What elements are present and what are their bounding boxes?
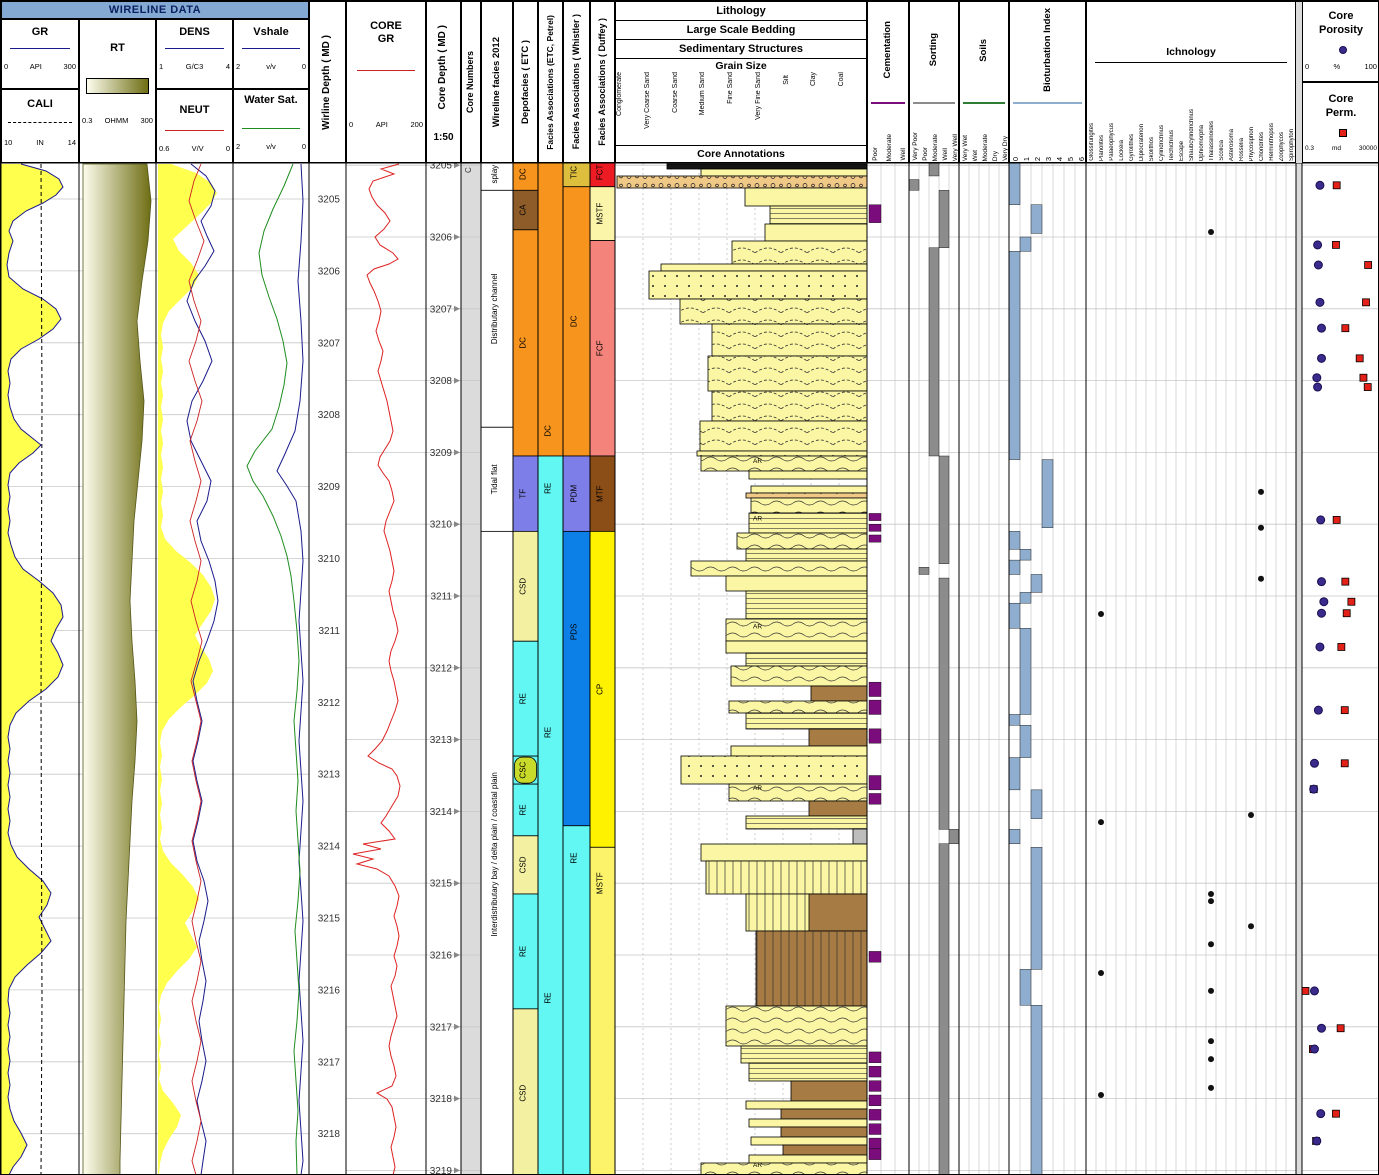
- sub-label: Well: [942, 148, 949, 161]
- bioturbation-title: Bioturbation Index: [1043, 8, 1053, 92]
- sub-label: Thalassinoides: [1209, 121, 1215, 161]
- svg-text:MSTF: MSTF: [596, 203, 605, 225]
- sub-label: Very Fine Sand: [755, 72, 762, 120]
- gr-label: GR: [2, 26, 78, 38]
- sub-label: Diplocraterion: [1139, 124, 1145, 161]
- dens-curve-key: [165, 48, 224, 49]
- core-perm-header: Core Perm. 0.3 md 30000: [1302, 82, 1379, 163]
- svg-text:FCF: FCF: [596, 340, 605, 356]
- fa-etc-track: DCRERERE: [538, 158, 563, 1175]
- svg-text:DC: DC: [519, 168, 528, 180]
- svg-text:DC: DC: [544, 425, 553, 437]
- svg-text:3215: 3215: [430, 879, 453, 890]
- cementation-header: Cementation PoorModerateWell: [867, 1, 909, 163]
- cali-min: 10: [4, 138, 12, 147]
- svg-text:3211: 3211: [318, 626, 340, 637]
- sort-labels-item: Well: [940, 105, 950, 161]
- svg-text:Tidal flat: Tidal flat: [490, 464, 499, 495]
- watersat-max: 0: [302, 142, 306, 151]
- svg-text:TF: TF: [519, 489, 528, 499]
- ichno-labels-item: Thalassinoides: [1207, 63, 1217, 161]
- ichno-labels-item: Asterosoma: [1227, 63, 1237, 161]
- sorting-key-line: [913, 102, 955, 104]
- dens-max: 4: [226, 62, 230, 71]
- ichno-labels-item: Planolites: [1097, 63, 1107, 161]
- ichno-labels-item: Rosselia: [1237, 63, 1247, 161]
- svg-text:AR: AR: [753, 516, 762, 523]
- depofacies-title: Depofacies ( ETC ): [521, 40, 531, 124]
- gr-unit: API: [30, 62, 42, 71]
- sub-label: Shaubcylindrichnus: [1189, 109, 1195, 161]
- core-numbers-title: Core Numbers: [466, 51, 475, 113]
- wireline-data-title: WIRELINE DATA: [109, 4, 201, 16]
- cali-max: 14: [68, 138, 76, 147]
- svg-text:AR: AR: [753, 1162, 762, 1169]
- perm-min: 0.3: [1305, 145, 1314, 152]
- lithology-header: Lithology Large Scale Bedding Sedimentar…: [615, 1, 867, 163]
- svg-text:splay: splay: [490, 165, 499, 184]
- svg-text:PDM: PDM: [570, 484, 579, 502]
- sorting-track: [909, 158, 959, 1175]
- watersat-curve-key: [242, 128, 300, 129]
- svg-text:CSD: CSD: [519, 578, 528, 595]
- grain-labels-item: Conglomerate: [616, 72, 644, 144]
- fa-whistler-track: TICDCPDMPDSRE: [563, 158, 590, 1175]
- svg-text:CSC: CSC: [519, 761, 528, 778]
- fa-etc-header: Facies Associations (ETC, Petrel): [538, 1, 563, 163]
- dens-header: DENS 1 G/C3 4: [156, 19, 233, 89]
- svg-text:3210: 3210: [430, 520, 453, 531]
- cali-label: CALI: [2, 98, 78, 110]
- ichnology-title: Ichnology: [1087, 46, 1295, 58]
- svg-text:3218: 3218: [430, 1094, 453, 1105]
- sub-label: Ophiomorpha: [1199, 125, 1205, 161]
- svg-text:CP: CP: [596, 684, 605, 695]
- rt-max: 300: [140, 116, 153, 125]
- ichno-labels-item: Escape: [1177, 63, 1187, 161]
- core-porosity-header: Core Porosity 0 % 100: [1302, 1, 1379, 82]
- neut-header: NEUT 0.6 V/V 0: [156, 89, 233, 163]
- soils-key-line: [963, 102, 1005, 104]
- ichno-labels-item: Cylindrichnus: [1157, 63, 1167, 161]
- soil-labels-item: Wet: [970, 105, 980, 161]
- svg-text:DC: DC: [519, 337, 528, 349]
- sub-label: Clay: [810, 72, 817, 86]
- svg-text:PDS: PDS: [570, 624, 579, 640]
- svg-text:3207: 3207: [430, 304, 453, 315]
- wireline-data-titlebar: WIRELINE DATA: [1, 1, 309, 19]
- grain-labels-item: Medium Sand: [699, 72, 727, 144]
- biot-labels-item: 1: [1021, 105, 1032, 161]
- grain-labels-item: Very Fine Sand: [755, 72, 783, 144]
- wireline-facies-header: Wireline facies 2012: [481, 1, 513, 163]
- sub-label: Coal: [838, 72, 845, 86]
- sorting-title: Sorting: [929, 33, 939, 66]
- fa-whistler-title: Facies Associations ( Whistler ): [572, 14, 581, 149]
- biot-labels-item: 3: [1043, 105, 1054, 161]
- svg-text:3211: 3211: [430, 592, 452, 603]
- sub-label: Moderate: [932, 134, 939, 161]
- rt-unit: OHMM: [105, 116, 129, 125]
- sub-label: Helminthopsis: [1269, 123, 1275, 161]
- sub-label: Moderate: [886, 134, 893, 161]
- log-plot-canvas: splayDistributary channelTidal flatInter…: [1, 1, 1379, 1175]
- sub-label: Scolicia: [1219, 140, 1225, 161]
- watersat-min: 2: [236, 142, 240, 151]
- cementation-key-line: [871, 102, 905, 104]
- core-gr-curve-key: [357, 70, 415, 71]
- gr-curve-key: [10, 48, 70, 49]
- svg-text:3205: 3205: [318, 195, 341, 206]
- core-depth-scale: 1:50: [427, 132, 460, 143]
- sub-label: Cylindrichnus: [1159, 125, 1165, 161]
- gr-max: 300: [63, 62, 76, 71]
- svg-text:3213: 3213: [430, 735, 453, 746]
- sub-label: Planolites: [1099, 135, 1105, 161]
- svg-text:CSD: CSD: [519, 856, 528, 873]
- rt-header: RT 0.3 OHMM 300: [79, 19, 156, 163]
- grain-labels-item: Very Coarse Sand: [644, 72, 672, 144]
- rt-min: 0.3: [82, 116, 92, 125]
- sub-label: Very Dry: [1002, 136, 1009, 161]
- sub-label: Spirophyton: [1289, 129, 1295, 161]
- watersat-label: Water Sat.: [234, 94, 308, 106]
- core-gr-unit: API: [376, 120, 388, 129]
- neut-min: 0.6: [159, 144, 169, 153]
- sub-label: Dry: [992, 151, 999, 161]
- bioturbation-header: Bioturbation Index 0123456: [1009, 1, 1086, 163]
- grain-size-title: Grain Size: [616, 59, 866, 73]
- svg-text:RE: RE: [544, 727, 553, 738]
- biot-labels-item: 0: [1010, 105, 1021, 161]
- sub-label: 5: [1066, 157, 1075, 161]
- soil-labels-item: Moderate: [980, 105, 990, 161]
- sub-label: 4: [1055, 157, 1064, 161]
- svg-text:3213: 3213: [318, 770, 341, 781]
- rt-label: RT: [80, 42, 155, 54]
- ichno-labels-item: Glossifungites: [1087, 63, 1097, 161]
- cem-labels-item: Well: [896, 105, 910, 161]
- svg-text:3216: 3216: [430, 951, 453, 962]
- svg-text:C: C: [464, 167, 473, 173]
- svg-text:3206: 3206: [430, 233, 453, 244]
- wireline-facies-title: Wireline facies 2012: [492, 37, 502, 127]
- svg-text:RE: RE: [544, 483, 553, 494]
- neut-max: 0: [226, 144, 230, 153]
- sub-label: 2: [1033, 157, 1042, 161]
- sub-label: Coarse Sand: [672, 72, 679, 113]
- svg-text:CSD: CSD: [519, 1085, 528, 1102]
- biot-labels-item: 4: [1054, 105, 1065, 161]
- sub-label: Glossifungites: [1089, 123, 1095, 161]
- svg-text:3219: 3219: [430, 1166, 453, 1175]
- svg-text:RE: RE: [519, 804, 528, 815]
- sub-label: Chondrites: [1259, 132, 1265, 161]
- dens-unit: G/C3: [186, 62, 204, 71]
- fa-whistler-header: Facies Associations ( Whistler ): [563, 1, 590, 163]
- cementation-title: Cementation: [883, 21, 893, 79]
- sub-label: Gyrolithes: [1129, 134, 1135, 161]
- svg-text:AR: AR: [753, 785, 762, 792]
- porosity-unit: %: [1333, 62, 1340, 71]
- grain-size-labels: ConglomerateVery Coarse SandCoarse SandM…: [616, 72, 866, 144]
- sub-label: Poor: [872, 147, 879, 161]
- grain-labels-item: Fine Sand: [727, 72, 755, 144]
- svg-text:AR: AR: [753, 458, 762, 465]
- biot-labels-item: 5: [1065, 105, 1076, 161]
- dens-min: 1: [159, 62, 163, 71]
- svg-text:3215: 3215: [318, 914, 341, 925]
- soil-labels-item: Dry: [990, 105, 1000, 161]
- svg-text:RE: RE: [570, 853, 579, 864]
- soils-header: Soils Very WetWetModerateDryVery Dry: [959, 1, 1009, 163]
- perm-marker-key: [1339, 129, 1347, 137]
- sub-label: Rosselia: [1239, 138, 1245, 161]
- svg-text:3214: 3214: [318, 842, 341, 853]
- core-gr-label: CORE GR: [347, 20, 425, 45]
- cementation-track: [869, 205, 881, 1160]
- core-numbers-header: Core Numbers: [461, 1, 481, 163]
- svg-text:DC: DC: [570, 315, 579, 327]
- sub-label: 1: [1022, 157, 1031, 161]
- sub-label: 3: [1044, 157, 1053, 161]
- svg-text:3208: 3208: [318, 410, 341, 421]
- sub-label: Very Wet: [962, 135, 969, 161]
- cali-header: CALI 10 IN 14: [1, 89, 79, 163]
- svg-text:MTF: MTF: [596, 485, 605, 502]
- cem-labels-item: Poor: [868, 105, 882, 161]
- neut-curve-key: [165, 130, 224, 131]
- neut-label: NEUT: [157, 104, 232, 116]
- sort-labels-item: Moderate: [930, 105, 940, 161]
- ichno-labels-item: Diplocraterion: [1137, 63, 1147, 161]
- ichno-labels-item: Skolithos: [1147, 63, 1157, 161]
- sub-label: 6: [1077, 157, 1086, 161]
- sorting-header: Sorting Very PoorPoorModerateWellVery We…: [909, 1, 959, 163]
- svg-text:CA: CA: [519, 204, 528, 216]
- vshale-curve-key: [242, 48, 300, 49]
- gr-header: GR 0 API 300: [1, 19, 79, 89]
- sort-labels-item: Poor: [920, 105, 930, 161]
- ichno-labels-item: Palaeophycus: [1107, 63, 1117, 161]
- ichno-labels-item: Zoophycos: [1277, 63, 1287, 161]
- rt-gradient-key: [86, 78, 149, 94]
- soil-labels-item: Very Wet: [960, 105, 970, 161]
- vshale-unit: v/v: [266, 62, 276, 71]
- soils-sublabels: Very WetWetModerateDryVery Dry: [960, 105, 1010, 161]
- sub-label: Phycosiphon: [1249, 127, 1255, 161]
- cali-curve-key: [8, 122, 72, 123]
- svg-text:Distributary channel: Distributary channel: [490, 273, 499, 344]
- porosity-min: 0: [1305, 62, 1309, 71]
- fa-duffey-title: Facies Associations ( Duffey ): [598, 18, 607, 146]
- depofacies-header: Depofacies ( ETC ): [513, 1, 538, 163]
- ichnology-track: [1098, 229, 1264, 1098]
- core-annotations-title: Core Annotations: [616, 145, 866, 162]
- ichno-labels-item: Scolicia: [1217, 63, 1227, 161]
- sub-label: Escape: [1179, 141, 1185, 161]
- svg-text:RE: RE: [519, 693, 528, 704]
- svg-text:3217: 3217: [430, 1022, 453, 1033]
- perm-unit: md: [1332, 145, 1341, 152]
- svg-text:3217: 3217: [318, 1057, 341, 1068]
- wireline-depth-title: Wirline Depth ( MD ): [322, 35, 333, 130]
- grain-labels-item: Clay: [810, 72, 838, 144]
- neut-unit: V/V: [192, 144, 204, 153]
- depofacies-track: DCCADCTFCSDRECSCRECSDRECSD: [513, 158, 538, 1175]
- sub-label: 0: [1011, 157, 1020, 161]
- sorting-sublabels: Very PoorPoorModerateWellVery Well: [910, 105, 960, 161]
- sub-label: Poor: [922, 147, 929, 161]
- sub-label: Very Well: [952, 134, 959, 161]
- ichno-labels-item: Gyrolithes: [1127, 63, 1137, 161]
- vshale-header: Vshale 2 v/v 0: [233, 19, 309, 89]
- svg-text:3206: 3206: [318, 266, 341, 277]
- ichno-labels-item: Helminthopsis: [1267, 63, 1277, 161]
- sub-label: Silt: [783, 75, 790, 85]
- cementation-sublabels: PoorModerateWell: [868, 105, 910, 161]
- core-depth-title: Core Depth ( MD ): [438, 25, 449, 109]
- sub-label: Very Poor: [912, 132, 919, 161]
- svg-text:3214: 3214: [430, 807, 453, 818]
- watersat-header: Water Sat. 2 v/v 0: [233, 89, 309, 163]
- wireline-depth-header: Wirline Depth ( MD ): [309, 1, 346, 163]
- ichno-labels-item: Ophiomorpha: [1197, 63, 1207, 161]
- core-porosity-title: Core Porosity: [1303, 10, 1379, 38]
- sub-label: Medium Sand: [699, 72, 706, 115]
- watersat-unit: v/v: [266, 142, 276, 151]
- svg-text:3212: 3212: [318, 698, 341, 709]
- sub-label: Fine Sand: [727, 72, 734, 104]
- porosity-max: 100: [1364, 62, 1377, 71]
- dens-label: DENS: [157, 26, 232, 38]
- svg-text:AR: AR: [753, 623, 762, 630]
- sub-label: Very Coarse Sand: [644, 72, 651, 129]
- cem-labels-item: Moderate: [882, 105, 896, 161]
- lithology-track: [617, 164, 867, 1175]
- sub-label: Skolithos: [1149, 137, 1155, 161]
- ichnology-header: Ichnology GlossifungitesPlanolitesPalaeo…: [1086, 1, 1296, 163]
- perm-max: 30000: [1359, 145, 1377, 152]
- bioturbation-key-line: [1013, 102, 1082, 104]
- log-curves: [1, 164, 400, 1175]
- svg-text:3209: 3209: [318, 482, 341, 493]
- sub-label: Palaeophycus: [1109, 123, 1115, 161]
- porosity-marker-key: [1339, 46, 1347, 54]
- svg-text:3207: 3207: [318, 338, 341, 349]
- grain-labels-item: Silt: [783, 72, 811, 144]
- sub-label: Lockeia: [1119, 140, 1125, 161]
- well-log-sheet: splayDistributary channelTidal flatInter…: [0, 0, 1379, 1175]
- bioturbation-sublabels: 0123456: [1010, 105, 1087, 161]
- core-gr-min: 0: [349, 120, 353, 129]
- svg-text:3218: 3218: [318, 1129, 341, 1140]
- vshale-min: 2: [236, 62, 240, 71]
- core-perm-title: Core Perm.: [1303, 93, 1379, 121]
- core-gr-header: CORE GR 0 API 200: [346, 1, 426, 163]
- core-depth-header: Core Depth ( MD ) 1:50: [426, 1, 461, 163]
- svg-text:3212: 3212: [430, 663, 453, 674]
- svg-text:3210: 3210: [318, 554, 341, 565]
- ichnology-taxa-labels: GlossifungitesPlanolitesPalaeophycusLock…: [1087, 63, 1297, 161]
- svg-text:RE: RE: [519, 946, 528, 957]
- fa-duffey-track: FCTMSTFFCFMTFCPMSTF: [590, 158, 615, 1175]
- svg-text:TIC: TIC: [570, 166, 579, 179]
- grain-labels-item: Coal: [838, 72, 866, 144]
- fa-duffey-header: Facies Associations ( Duffey ): [590, 1, 615, 163]
- sub-label: Conglomerate: [616, 72, 623, 116]
- grain-labels-item: Coarse Sand: [672, 72, 700, 144]
- large-scale-bedding-title: Large Scale Bedding: [616, 21, 866, 40]
- sub-label: Moderate: [982, 134, 989, 161]
- svg-text:RE: RE: [544, 993, 553, 1004]
- svg-text:3216: 3216: [318, 985, 341, 996]
- vshale-label: Vshale: [234, 26, 308, 38]
- soils-title: Soils: [979, 39, 989, 62]
- ichno-labels-item: Phycosiphon: [1247, 63, 1257, 161]
- core-gr-max: 200: [410, 120, 423, 129]
- sub-label: Asterosoma: [1229, 129, 1235, 161]
- ichno-labels-item: Lockeia: [1117, 63, 1127, 161]
- sub-label: Wet: [972, 150, 979, 161]
- svg-text:3208: 3208: [430, 376, 453, 387]
- ichno-labels-item: Shaubcylindrichnus: [1187, 63, 1197, 161]
- ichno-labels-item: Teichichnus: [1167, 63, 1177, 161]
- fa-etc-title: Facies Associations (ETC, Petrel): [546, 15, 555, 150]
- sub-label: Teichichnus: [1169, 130, 1175, 161]
- sub-label: Well: [900, 148, 907, 161]
- ichno-labels-item: Chondrites: [1257, 63, 1267, 161]
- svg-text:Interdistributary bay / delta: Interdistributary bay / delta plain / co…: [490, 772, 499, 937]
- sedimentary-structures-title: Sedimentary Structures: [616, 40, 866, 59]
- lithology-title: Lithology: [616, 2, 866, 21]
- wireline-facies-track: splayDistributary channelTidal flatInter…: [481, 158, 513, 1175]
- core-porosity-perm-track: [1302, 181, 1372, 1145]
- cali-unit: IN: [36, 138, 44, 147]
- biot-labels-item: 2: [1032, 105, 1043, 161]
- sort-labels-item: Very Poor: [910, 105, 920, 161]
- vshale-max: 0: [302, 62, 306, 71]
- svg-text:MSTF: MSTF: [596, 872, 605, 894]
- gr-min: 0: [4, 62, 8, 71]
- sub-label: Zoophycos: [1279, 132, 1285, 161]
- svg-text:FCT: FCT: [596, 164, 605, 180]
- svg-text:3209: 3209: [430, 448, 453, 459]
